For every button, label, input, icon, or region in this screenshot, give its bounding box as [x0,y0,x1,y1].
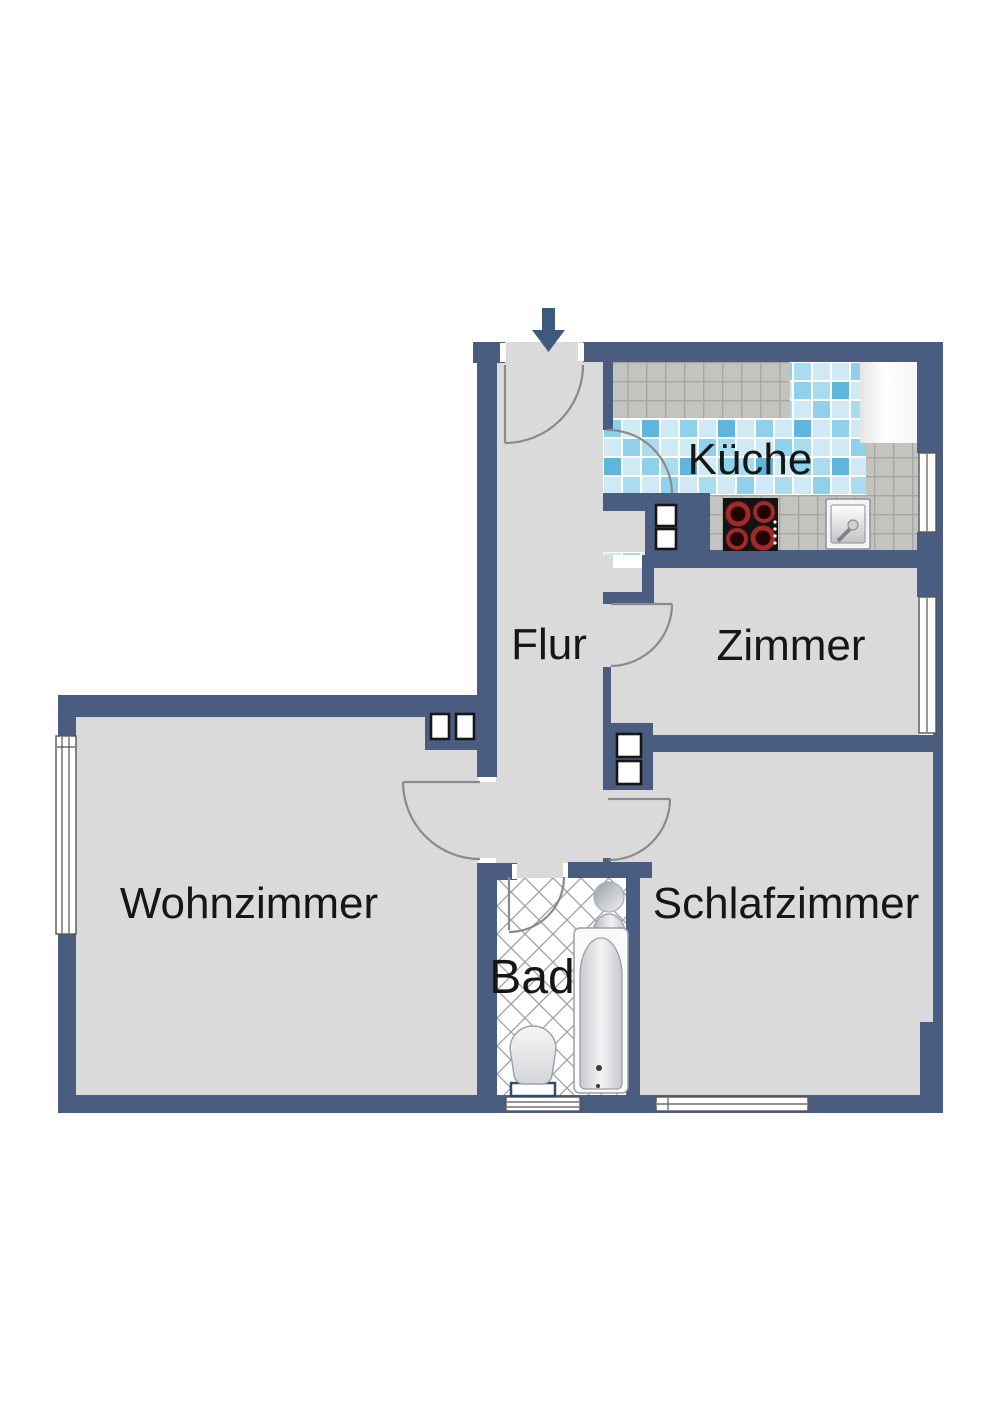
wohnzimmer-window [56,736,76,934]
wall [568,862,652,878]
flur-label: Flur [511,620,587,669]
wall [603,592,654,604]
schlafzimmer-window [656,1097,808,1111]
wohnzimmer-label: Wohnzimmer [120,879,378,928]
floor-plan: Küche Flur Zimmer Wohnzimmer Schlafzimme… [0,0,1000,1415]
bad-window [506,1097,580,1111]
mirror [594,882,624,912]
wall [642,555,654,595]
wall [936,597,943,733]
wall [477,342,497,777]
kitchen-sink [826,499,870,549]
bad-label: Bad [489,951,574,1004]
shaft-vent [656,529,676,549]
shaft-vent [617,761,641,784]
wall [645,550,943,568]
shaft-vent [656,505,676,526]
toilet [510,1026,556,1096]
wall [603,342,613,430]
door-jamb [500,343,506,362]
stove [723,498,778,551]
zimmer-window [919,597,936,733]
wall [603,667,611,723]
shaft-vent [456,714,474,739]
wall [936,453,943,532]
kitchen-counter [866,443,920,553]
door-jamb [563,863,568,877]
wall [583,342,943,362]
kitchen-window [919,453,936,532]
schlafzimmer-label: Schlafzimmer [653,879,920,928]
kueche-label: Küche [688,435,813,484]
zimmer-label: Zimmer [716,621,865,670]
door-jamb [512,864,517,879]
wall [58,1095,943,1113]
wall [917,342,943,453]
wall [603,493,645,511]
bathtub [574,928,628,1093]
door-jamb [478,858,496,863]
door-jamb [578,343,584,361]
shaft-vent [617,734,641,757]
wall [647,735,943,752]
refrigerator [860,362,920,443]
door-jamb [478,777,496,782]
shaft-vent [431,714,449,739]
wall [920,1022,943,1095]
wall [933,733,943,1022]
kitchen-counter [608,362,790,418]
kueche-alcove-floor [603,511,645,552]
flur-floor [497,342,613,880]
